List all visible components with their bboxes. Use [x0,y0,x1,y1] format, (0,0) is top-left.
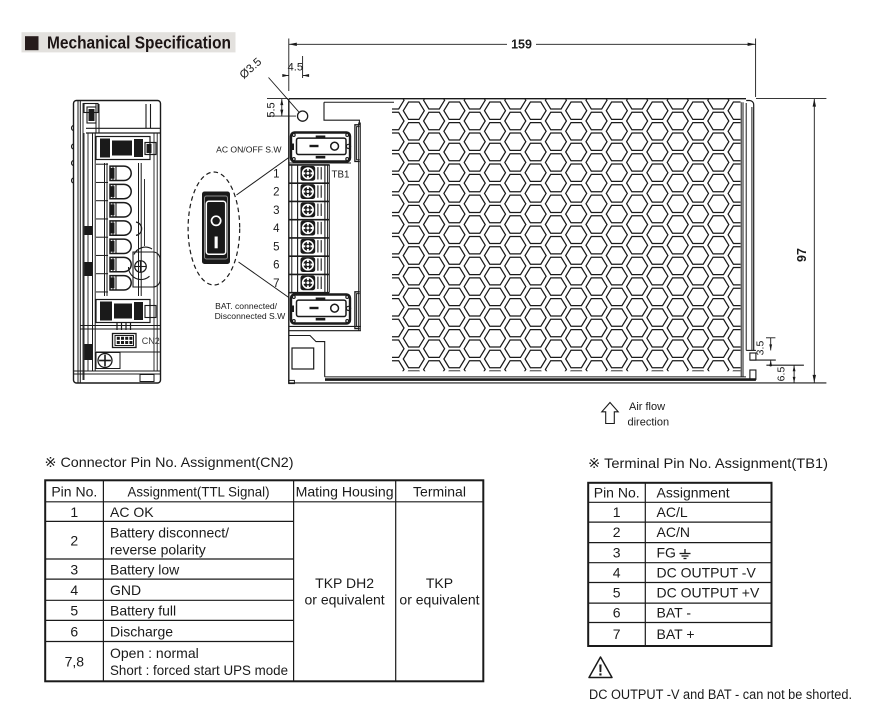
svg-text:7,8: 7,8 [65,653,85,669]
svg-text:GND: GND [110,582,141,598]
svg-text:6: 6 [273,260,279,272]
svg-text:5: 5 [70,602,78,618]
svg-text:AC/N: AC/N [657,524,690,540]
svg-text:Ø3.5: Ø3.5 [238,56,265,82]
svg-text:6.5: 6.5 [775,367,787,382]
svg-text:Assignment(TTL Signal): Assignment(TTL Signal) [128,483,270,499]
svg-text:BAT. connected/: BAT. connected/ [215,301,278,311]
svg-text:Mating Housing: Mating Housing [296,483,394,499]
svg-text:Disconnected S.W: Disconnected S.W [215,311,287,321]
svg-text:BAT +: BAT + [657,626,695,642]
svg-text:1: 1 [70,504,78,520]
svg-text:or equivalent: or equivalent [399,591,479,607]
svg-text:BAT -: BAT - [657,605,692,621]
svg-text:4: 4 [613,564,621,580]
svg-text:3: 3 [273,205,279,217]
svg-text:7: 7 [613,626,621,642]
svg-text:TB1: TB1 [332,170,350,181]
svg-text:reverse polarity: reverse polarity [110,541,206,557]
svg-text:TKP DH2: TKP DH2 [315,575,374,591]
svg-text:or equivalent: or equivalent [305,591,385,607]
svg-text:Open : normal: Open : normal [110,645,199,661]
svg-text:Battery disconnect/: Battery disconnect/ [110,524,229,540]
svg-text:DC OUTPUT +V: DC OUTPUT +V [657,585,760,601]
svg-text:1: 1 [273,168,279,180]
svg-text:AC OK: AC OK [110,504,154,520]
svg-text:Pin No.: Pin No. [51,483,97,499]
svg-text:direction: direction [628,417,670,429]
svg-text:5.5: 5.5 [265,102,277,117]
svg-text:Discharge: Discharge [110,623,173,639]
svg-text:3.5: 3.5 [754,341,766,356]
svg-text:5: 5 [613,585,621,601]
svg-text:Battery low: Battery low [110,561,180,577]
svg-text:2: 2 [70,532,78,548]
svg-text:※ Connector Pin No. Assignment: ※ Connector Pin No. Assignment(CN2) [45,454,294,470]
svg-text:7: 7 [273,278,279,290]
svg-text:※ Terminal Pin No. Assignment(: ※ Terminal Pin No. Assignment(TB1) [588,455,828,471]
svg-text:Assignment: Assignment [657,484,730,500]
svg-text:AC/L: AC/L [657,504,688,520]
svg-text:Terminal: Terminal [413,483,466,499]
svg-text:4.5: 4.5 [288,62,303,74]
svg-text:3: 3 [613,545,621,561]
svg-text:Battery full: Battery full [110,602,176,618]
svg-text:3: 3 [70,561,78,577]
svg-text:4: 4 [70,582,78,598]
svg-text:CN2: CN2 [142,336,160,346]
svg-text:97: 97 [795,248,809,262]
svg-text:Short : forced start UPS mode: Short : forced start UPS mode [110,662,288,678]
svg-text:DC OUTPUT -V and BAT - can not: DC OUTPUT -V and BAT - can not be shorte… [589,687,852,702]
svg-text:2: 2 [273,187,279,199]
svg-text:Mechanical Specification: Mechanical Specification [47,33,231,53]
svg-text:Pin No.: Pin No. [594,484,640,500]
svg-text:AC ON/OFF S.W: AC ON/OFF S.W [216,145,282,155]
svg-text:5: 5 [273,241,279,253]
svg-text:FG: FG [657,545,676,561]
svg-text:4: 4 [273,223,280,235]
svg-text:!: ! [598,663,603,680]
svg-text:159: 159 [511,37,532,51]
svg-text:6: 6 [613,605,621,621]
svg-text:DC OUTPUT -V: DC OUTPUT -V [657,564,757,580]
svg-text:6: 6 [70,623,78,639]
svg-text:1: 1 [613,504,621,520]
svg-text:Air flow: Air flow [629,401,665,413]
svg-text:TKP: TKP [426,575,453,591]
svg-text:2: 2 [613,524,621,540]
